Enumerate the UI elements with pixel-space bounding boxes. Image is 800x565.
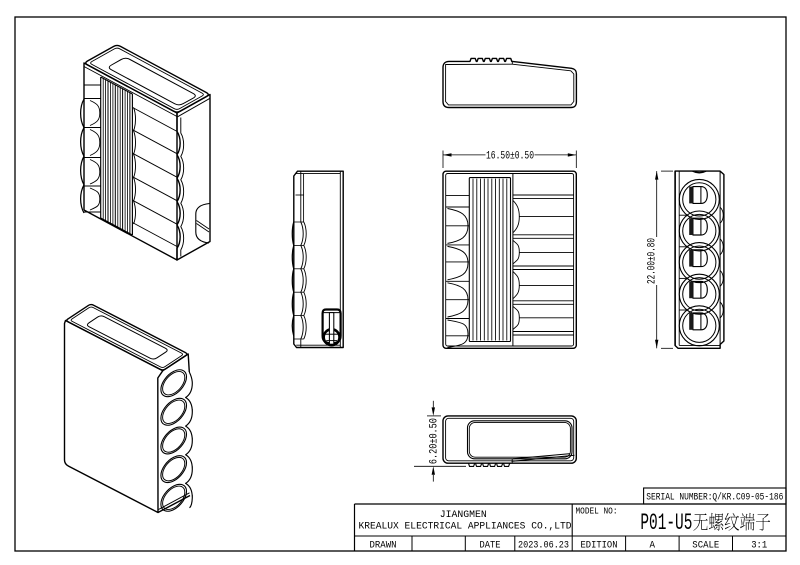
svg-text:KREALUX ELECTRICAL APPLIANCES: KREALUX ELECTRICAL APPLIANCES CO.,LTD [359,521,572,533]
svg-text:DATE: DATE [480,539,501,551]
svg-text:SERIAL NUMBER:Q/KR.C09-05-186: SERIAL NUMBER:Q/KR.C09-05-186 [646,492,783,504]
svg-text:SCALE: SCALE [692,539,719,551]
svg-text:6.20±0.50: 6.20±0.50 [429,418,441,464]
svg-text:P01-U5: P01-U5 [640,510,692,537]
svg-text:2023.06.23: 2023.06.23 [518,539,569,551]
svg-text:EDITION: EDITION [581,539,618,551]
svg-text:3:1: 3:1 [751,539,767,551]
svg-text:16.50±0.50: 16.50±0.50 [486,151,534,163]
svg-text:A: A [650,539,656,551]
svg-text:DRAWN: DRAWN [370,539,397,551]
svg-text:JIANGMEN: JIANGMEN [440,509,487,521]
svg-text:22.00±0.80: 22.00±0.80 [647,238,659,284]
svg-text:MODEL NO:: MODEL NO: [576,506,618,517]
